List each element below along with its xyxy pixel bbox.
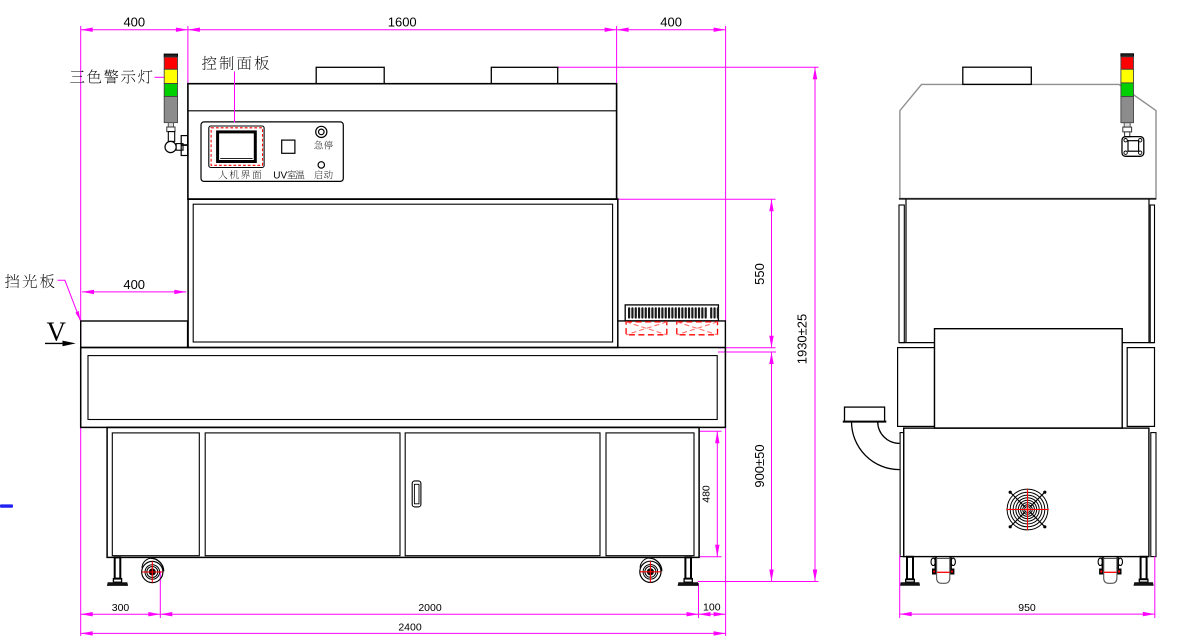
svg-text:1600: 1600 — [388, 15, 417, 30]
svg-text:1930±25: 1930±25 — [795, 314, 810, 365]
svg-text:100: 100 — [703, 602, 721, 614]
svg-text:950: 950 — [1018, 602, 1036, 614]
svg-text:300: 300 — [112, 602, 130, 614]
svg-text:400: 400 — [123, 277, 145, 292]
svg-text:480: 480 — [701, 485, 713, 503]
svg-text:550: 550 — [752, 263, 767, 285]
svg-text:400: 400 — [123, 15, 145, 30]
svg-text:400: 400 — [660, 15, 682, 30]
svg-text:2400: 2400 — [398, 621, 422, 633]
svg-text:900±50: 900±50 — [752, 444, 767, 487]
svg-text:2000: 2000 — [418, 602, 442, 614]
svg-text:UV: UV — [273, 170, 287, 181]
